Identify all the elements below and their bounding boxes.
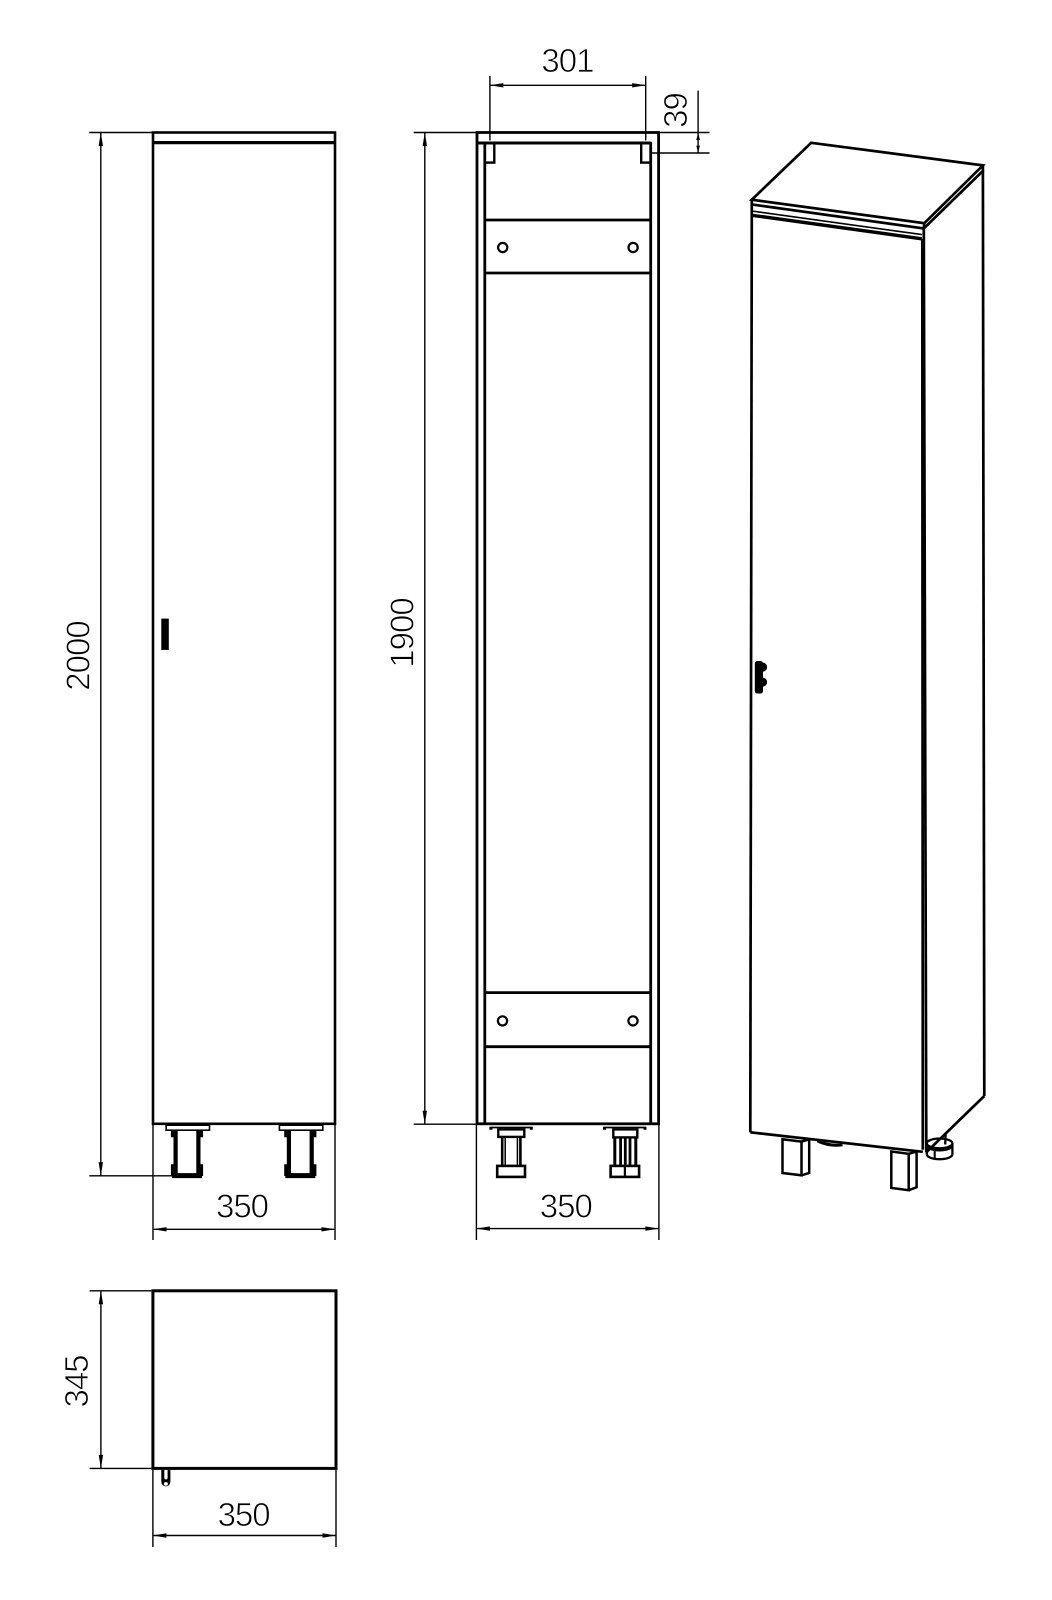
svg-text:350: 350	[540, 1188, 593, 1225]
svg-text:350: 350	[218, 1496, 271, 1533]
svg-text:345: 345	[58, 1355, 95, 1407]
svg-text:350: 350	[216, 1188, 269, 1225]
svg-text:301: 301	[541, 42, 593, 79]
svg-text:39: 39	[657, 93, 694, 128]
svg-text:2000: 2000	[60, 621, 97, 691]
svg-text:1900: 1900	[384, 598, 421, 668]
